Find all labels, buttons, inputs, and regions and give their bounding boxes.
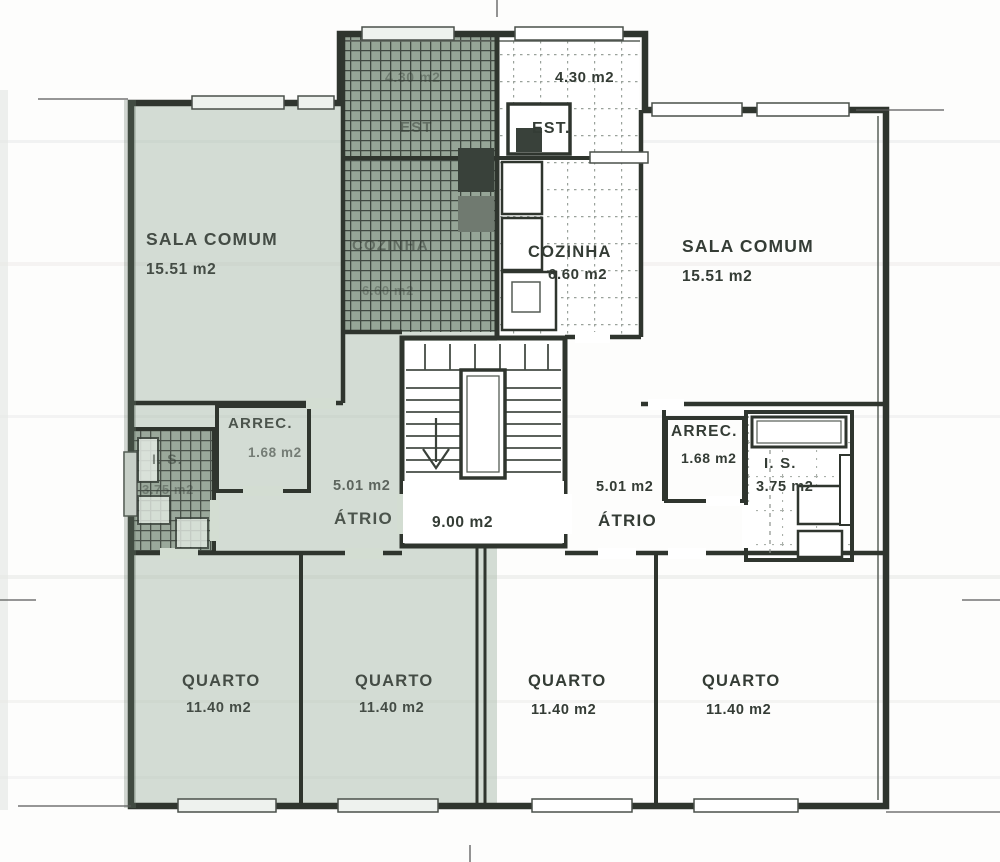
- left-wall-shade: [124, 100, 136, 808]
- window-sill: [362, 27, 454, 40]
- area-atrio-left: 5.01 m2: [333, 478, 390, 494]
- area-atrio-right: 5.01 m2: [596, 479, 653, 495]
- duct-shaft: [458, 148, 494, 192]
- window-sill: [515, 27, 623, 40]
- scanned-floorplan-page: SALA COMUM 15.51 m2 4.30 m2 EST COZINHA …: [0, 0, 1000, 862]
- kitchen-counter: [502, 162, 542, 214]
- area-est-left: 4.30 m2: [385, 69, 441, 85]
- label-cozinha-right: COZINHA: [528, 243, 612, 261]
- floorplan-drawing: SALA COMUM 15.51 m2 4.30 m2 EST COZINHA …: [0, 0, 1000, 862]
- label-sala-comum-left: SALA COMUM: [146, 229, 278, 249]
- area-sala-comum-right: 15.51 m2: [682, 268, 752, 285]
- duct-shaft: [458, 196, 494, 232]
- area-quarto-left-2: 11.40 m2: [359, 700, 424, 716]
- window-sill: [298, 96, 334, 109]
- window-sill: [757, 103, 849, 116]
- area-stair-landing: 9.00 m2: [432, 514, 493, 531]
- label-est-left: EST: [400, 119, 433, 136]
- area-quarto-right-1: 11.40 m2: [531, 702, 596, 718]
- area-quarto-left-1: 11.40 m2: [186, 700, 251, 716]
- window-sill: [590, 152, 648, 163]
- toilet: [798, 531, 842, 557]
- area-sala-comum-left: 15.51 m2: [146, 261, 216, 278]
- area-arrec-right: 1.68 m2: [681, 450, 737, 466]
- label-quarto-left-2: QUARTO: [355, 672, 433, 690]
- left-est-hatch: [345, 36, 495, 156]
- label-cozinha-left: COZINHA: [352, 237, 429, 254]
- window-sill: [532, 799, 632, 812]
- label-arrec-left: ARREC.: [228, 415, 293, 432]
- area-is-left: 3.75 m2: [142, 482, 194, 497]
- label-est-right: EST.: [532, 120, 571, 137]
- label-arrec-right: ARREC.: [671, 423, 738, 440]
- label-is-left: I. S.: [152, 451, 183, 467]
- label-atrio-left: ÁTRIO: [334, 509, 393, 528]
- label-sala-comum-right: SALA COMUM: [682, 236, 814, 256]
- label-quarto-left-1: QUARTO: [182, 672, 260, 690]
- area-arrec-left: 1.68 m2: [248, 445, 302, 460]
- area-est-right: 4.30 m2: [555, 69, 614, 86]
- window-sill: [694, 799, 798, 812]
- window-sill: [652, 103, 742, 116]
- area-quarto-right-2: 11.40 m2: [706, 702, 771, 718]
- left-bath-fixture: [176, 518, 208, 548]
- window-sill: [192, 96, 284, 109]
- window-sill: [178, 799, 276, 812]
- label-quarto-right-2: QUARTO: [702, 672, 780, 690]
- area-cozinha-left: 6.60 m2: [362, 283, 414, 298]
- area-is-right: 3.75 m2: [756, 479, 813, 495]
- bath-cabinet: [840, 455, 851, 525]
- area-cozinha-right: 6.60 m2: [548, 266, 607, 283]
- label-is-right: I. S.: [764, 455, 797, 472]
- label-quarto-right-1: QUARTO: [528, 672, 606, 690]
- label-atrio-right: ÁTRIO: [598, 511, 657, 530]
- left-bath-fixture: [138, 496, 170, 524]
- window-sill: [338, 799, 438, 812]
